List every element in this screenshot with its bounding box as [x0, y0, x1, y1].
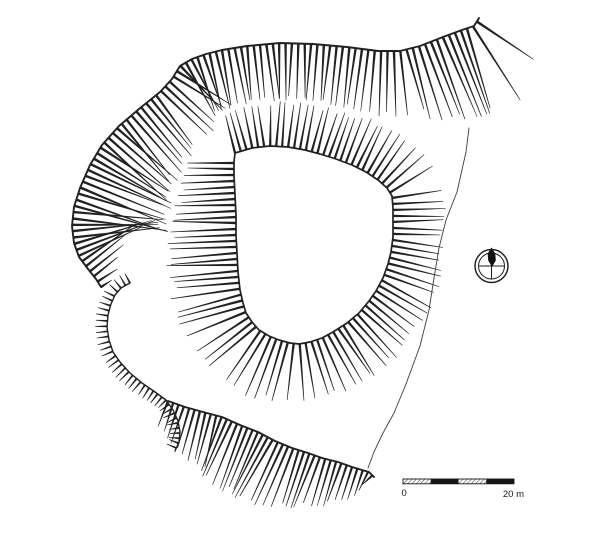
hachure-marks: [72, 20, 534, 288]
north-arrow: [475, 248, 508, 283]
scale-bar-segments: [403, 479, 514, 484]
earthwork-plan-figure: 0 20 m: [0, 0, 600, 533]
scale-label-start: 0: [402, 488, 407, 499]
outer-scarp: [72, 18, 534, 288]
scale-bar-segment: [459, 479, 487, 484]
inner-platform-scarp: [166, 101, 445, 401]
south-scarp: [158, 401, 374, 508]
hollow-way-scarp: [95, 274, 180, 451]
hachure-marks: [166, 101, 445, 401]
earthworks-layer: [72, 18, 534, 508]
east-toe-line: [368, 128, 469, 468]
hachure-marks: [158, 401, 374, 508]
scale-bar-segment: [431, 479, 459, 484]
scale-label-end: 20 m: [503, 489, 524, 500]
inner-platform-scarp-crest-line: [234, 146, 393, 344]
scale-bar-segment: [486, 479, 514, 484]
earthwork-plan: 0 20 m: [0, 0, 600, 533]
hachure-marks: [95, 274, 180, 449]
scale-bar: 0 20 m: [402, 479, 525, 500]
scale-bar-segment: [403, 479, 431, 484]
